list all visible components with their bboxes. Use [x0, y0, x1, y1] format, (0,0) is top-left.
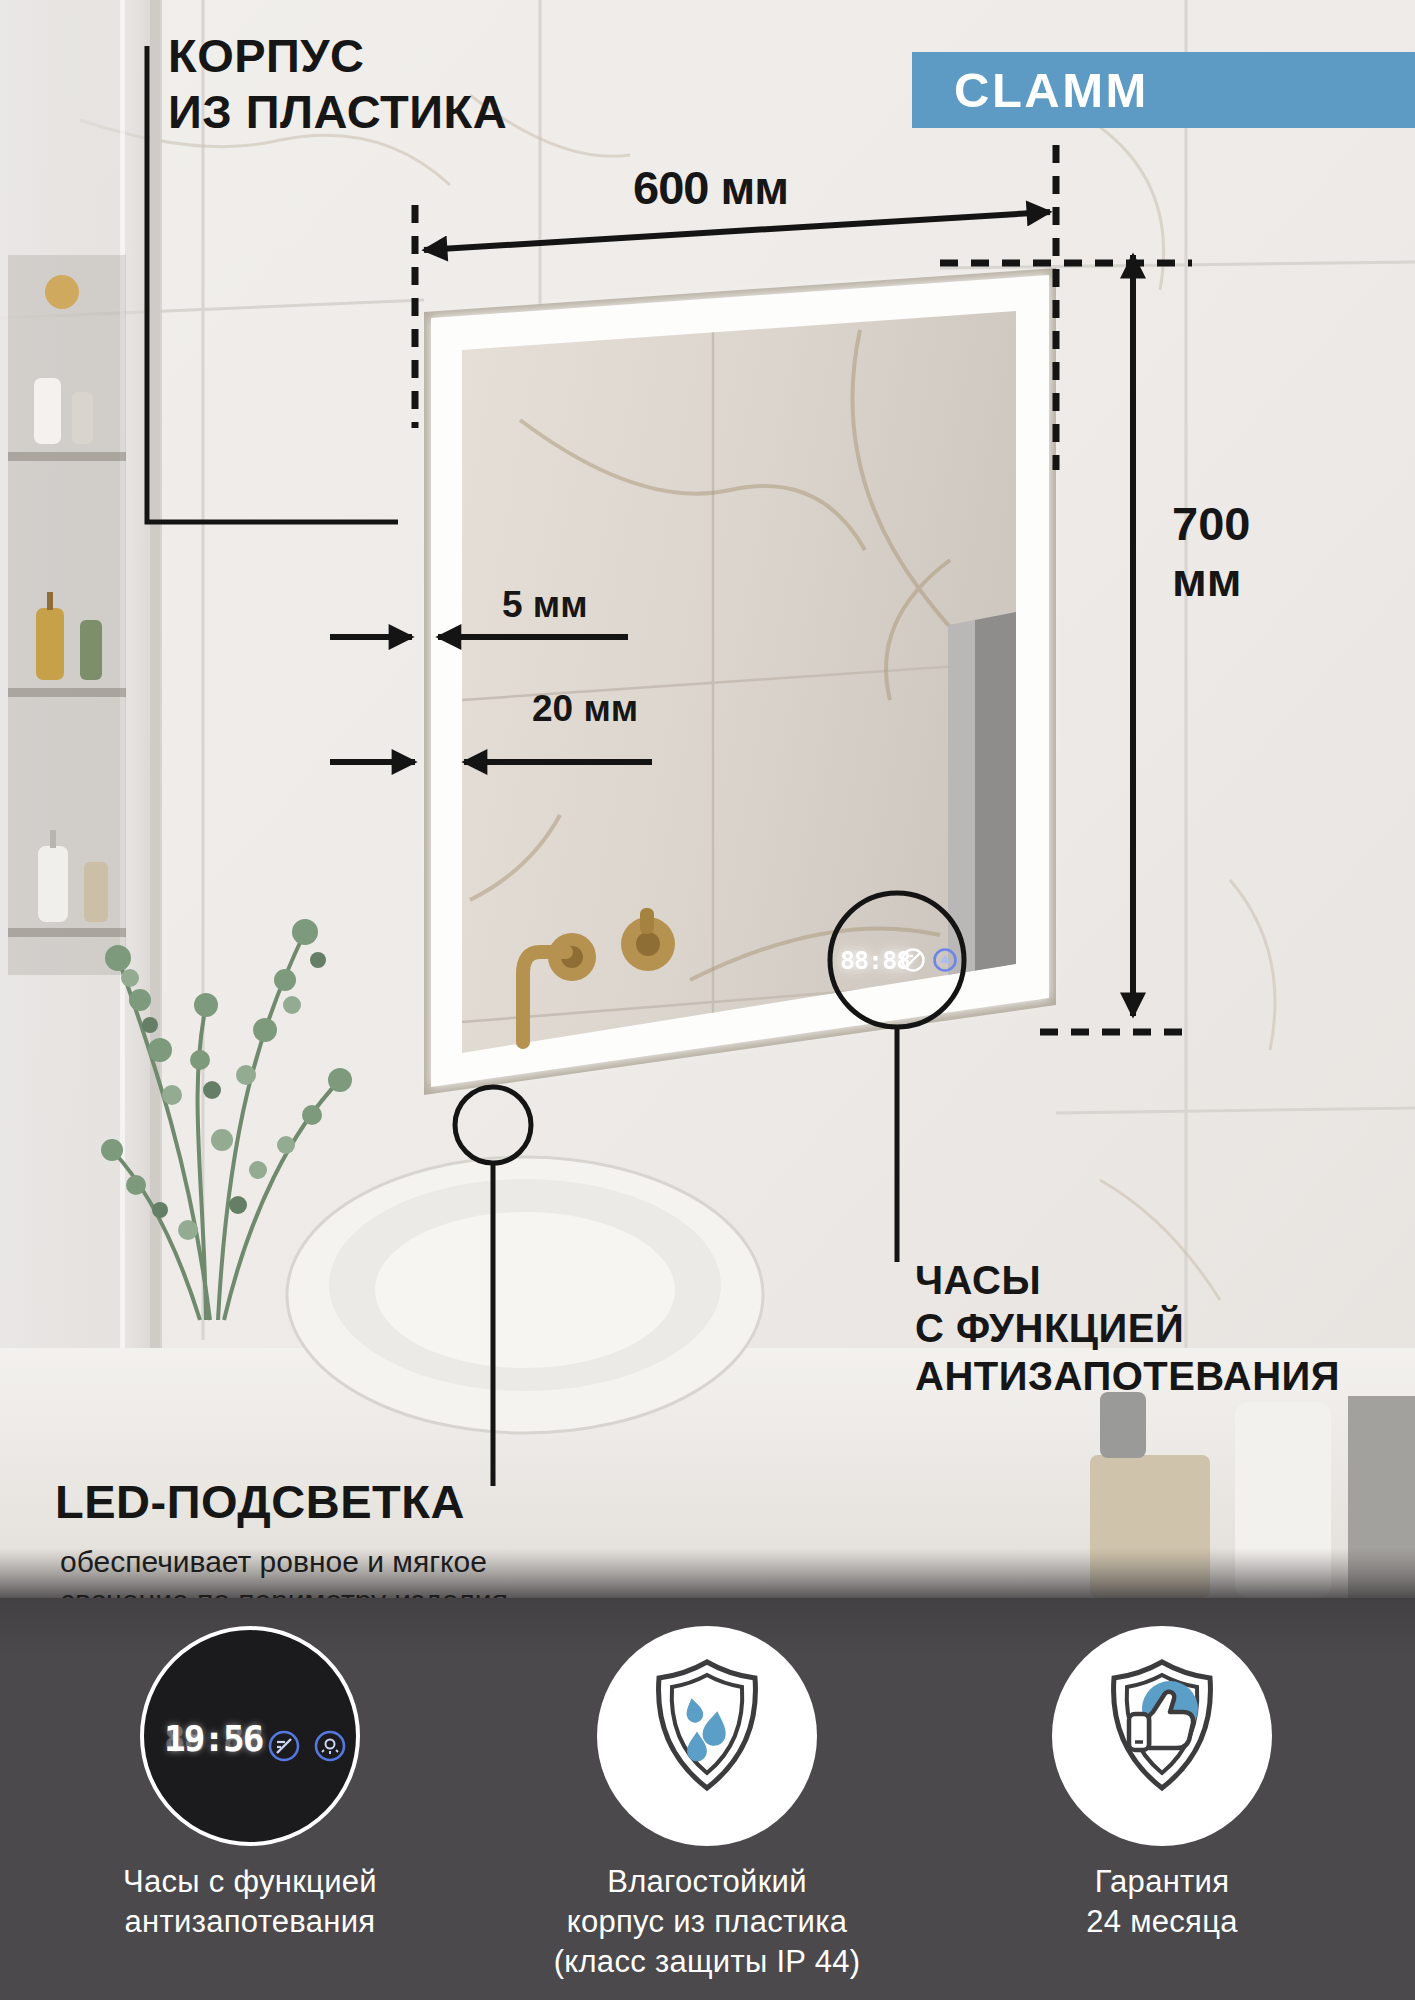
shield-thumb-icon: [1052, 1626, 1272, 1846]
clock-feature-title: ЧАСЫС ФУНКЦИЕЙАНТИЗАПОТЕВАНИЯ: [915, 1256, 1340, 1400]
body-callout-line1: КОРПУС: [168, 29, 365, 82]
feature-waterproof: Влагостойкийкорпус из пластика(класс защ…: [477, 1598, 937, 1982]
height-dimension-unit: мм: [1172, 553, 1242, 606]
reflected-door: [975, 612, 1016, 972]
led-desc-line1: обеспечивает ровное и мягкое: [60, 1545, 487, 1578]
brand-badge: CLAMM: [912, 52, 1415, 128]
defog-icon: [266, 1728, 302, 1764]
led-dimension-label: 20 мм: [532, 688, 638, 730]
body-callout-label: КОРПУСИЗ ПЛАСТИКА: [168, 28, 507, 140]
feature-waterproof-caption-line1: Влагостойкий: [607, 1864, 807, 1899]
frame-dimension-label: 5 мм: [502, 584, 588, 626]
card-shape: [1129, 1714, 1149, 1750]
shield-thumb-svg: [1102, 1654, 1222, 1804]
width-dimension-label: 600 мм: [633, 160, 788, 215]
feature-clock-caption-line1: Часы с функцией: [123, 1864, 377, 1899]
feature-clock-caption-line2: антизапотевания: [125, 1904, 376, 1939]
height-dimension-value: 700: [1172, 497, 1250, 550]
clock-title-line1: ЧАСЫ: [915, 1258, 1041, 1302]
feature-waterproof-caption: Влагостойкийкорпус из пластика(класс защ…: [477, 1862, 937, 1982]
feature-waterproof-caption-line2: корпус из пластика: [567, 1904, 848, 1939]
clock-title-line3: АНТИЗАПОТЕВАНИЯ: [915, 1354, 1340, 1398]
shield-drops-icon: [597, 1626, 817, 1846]
shield-drops-svg: [647, 1654, 767, 1804]
features-footer: 88:88 19:56 Часы с функциейантиза: [0, 1598, 1415, 2000]
feature-warranty-caption: Гарантия24 месяца: [932, 1862, 1392, 1942]
clock-display-icon: 88:88 19:56: [140, 1626, 360, 1846]
feature-waterproof-caption-line3: (класс защиты IP 44): [554, 1944, 861, 1979]
height-dimension-label: 700мм: [1172, 496, 1250, 608]
clock-title-line2: С ФУНКЦИЕЙ: [915, 1306, 1184, 1350]
body-callout-line2: ИЗ ПЛАСТИКА: [168, 85, 507, 138]
mirror-clock-time: 88:88: [840, 946, 910, 975]
feature-clock-caption: Часы с функциейантизапотевания: [20, 1862, 480, 1942]
product-infographic: 88:88: [0, 0, 1415, 2000]
feature-warranty-caption-line2: 24 месяца: [1086, 1904, 1238, 1939]
lcd-time: 19:56: [164, 1718, 262, 1759]
feature-warranty: Гарантия24 месяца: [932, 1598, 1392, 1942]
dispenser-bottle: [1100, 1392, 1146, 1458]
feature-clock: 88:88 19:56 Часы с функциейантиза: [20, 1598, 480, 1942]
light-button-icon: [312, 1728, 348, 1764]
feature-warranty-caption-line1: Гарантия: [1095, 1864, 1230, 1899]
led-clock: 88:88 19:56: [164, 1718, 262, 1759]
led-feature-title: LED-ПОДСВЕТКА: [55, 1474, 465, 1529]
